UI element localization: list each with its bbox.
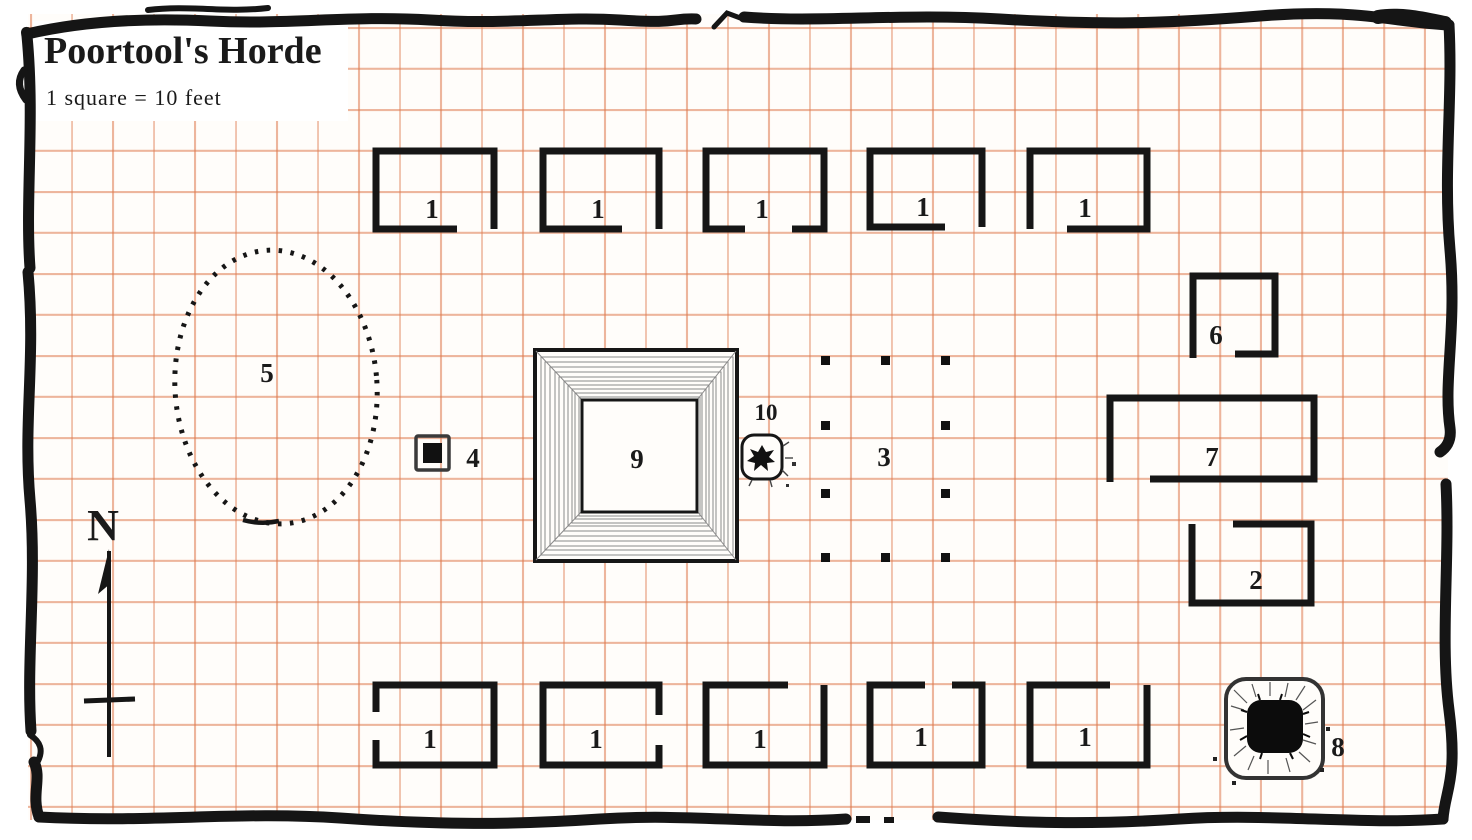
hut-label: 1: [1078, 722, 1092, 752]
hut-label: 1: [425, 194, 439, 224]
pillar-dot: [821, 356, 830, 365]
map-page: Poortool's Horde 1 square = 10 feet N: [0, 0, 1472, 840]
area-4-marker: 4: [416, 436, 480, 473]
hut-row-bottom: 1 1 1 1 1: [376, 685, 1147, 765]
hut-label: 1: [914, 722, 928, 752]
room-7: 7: [1110, 398, 1314, 482]
map-scale-note: 1 square = 10 feet: [46, 85, 222, 110]
speckle-dot: [1320, 768, 1324, 772]
area-label: 4: [466, 443, 480, 473]
area-label: 5: [260, 358, 274, 388]
border-gap-tick: [714, 13, 743, 27]
speckle-dot: [1213, 757, 1217, 761]
area-10-marker: 10: [742, 400, 796, 487]
area-9-ziggurat: 9: [535, 350, 737, 561]
compass-crossbar: [84, 699, 135, 701]
speckle-dot: [786, 484, 789, 487]
marker-fill: [423, 443, 442, 463]
compass-north-arrow: N: [84, 501, 135, 757]
area-3-pillars: 3: [821, 356, 950, 562]
map-title: Poortool's Horde: [44, 30, 322, 72]
speckle-dot: [792, 462, 796, 466]
hut-label: 1: [916, 192, 930, 222]
speckle-dot: [1326, 727, 1330, 731]
pillar-dot: [941, 489, 950, 498]
area-5-dotted-boundary: 5: [166, 243, 387, 530]
area-8-pit: 8: [1213, 679, 1345, 785]
hut-label: 1: [423, 724, 437, 754]
hut-label: 1: [589, 724, 603, 754]
pillar-dot: [821, 553, 830, 562]
hut-label: 1: [755, 194, 769, 224]
area-label: 3: [877, 442, 891, 472]
border-heavy-stroke: [1378, 16, 1445, 23]
room-6: 6: [1193, 276, 1275, 358]
pillar-dot: [941, 356, 950, 365]
border-overshoot-stroke: [148, 8, 268, 10]
dotted-oval: [166, 243, 387, 530]
pit-fill: [1247, 700, 1303, 753]
pillar-dot: [821, 421, 830, 430]
border-dash-dot: [856, 816, 870, 823]
hut-label: 1: [1078, 193, 1092, 223]
hut-label: 1: [591, 194, 605, 224]
oval-solid-arc: [243, 520, 279, 523]
pillar-dot: [821, 489, 830, 498]
area-label: 2: [1249, 565, 1263, 595]
pillar-dot: [941, 553, 950, 562]
area-label: 8: [1331, 732, 1345, 762]
area-label: 10: [755, 400, 778, 425]
pillar-dot: [941, 421, 950, 430]
speckle-dot: [1232, 781, 1236, 785]
hut-row-top: 1 1 1 1 1: [376, 151, 1147, 229]
pillar-dot: [881, 553, 890, 562]
area-label: 7: [1205, 442, 1219, 472]
border-dash-dot: [884, 817, 894, 823]
area-label: 6: [1209, 320, 1223, 350]
hut-label: 1: [753, 724, 767, 754]
area-label: 9: [630, 444, 644, 474]
map-drawing: Poortool's Horde 1 square = 10 feet N: [0, 0, 1472, 840]
room-2: 2: [1192, 524, 1311, 603]
compass-label: N: [87, 501, 119, 550]
pillar-dot: [881, 356, 890, 365]
